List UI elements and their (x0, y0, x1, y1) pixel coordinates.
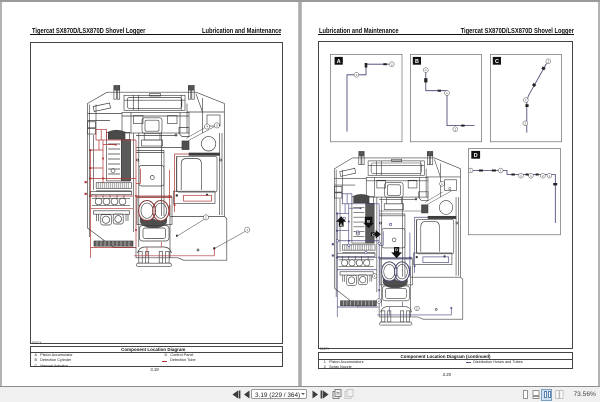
svg-text:D: D (474, 153, 478, 159)
svg-text:C: C (372, 232, 375, 237)
svg-text:D: D (395, 247, 398, 252)
svg-text:B: B (367, 218, 370, 223)
svg-text:A: A (337, 59, 341, 65)
svg-text:B: B (415, 59, 419, 65)
svg-text:C: C (495, 59, 499, 65)
svg-text:A: A (340, 222, 343, 227)
